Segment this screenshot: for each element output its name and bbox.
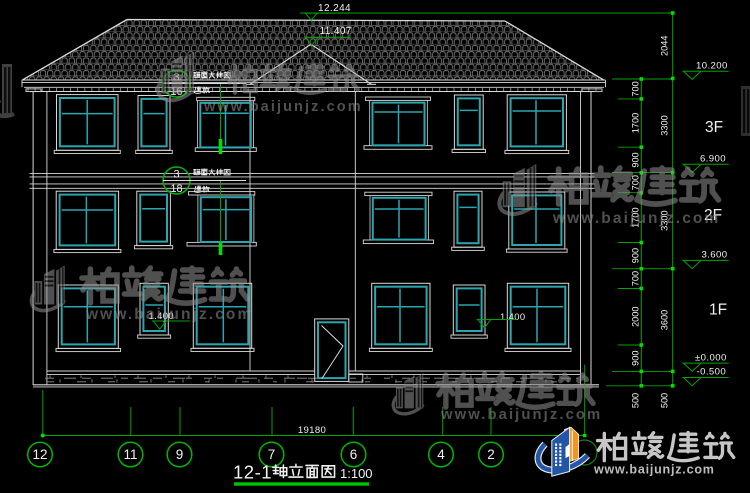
svg-text:700: 700 <box>631 271 641 286</box>
svg-text:4: 4 <box>437 447 445 462</box>
svg-text:2: 2 <box>487 447 495 462</box>
svg-text:www.baijunjz.com: www.baijunjz.com <box>203 99 363 115</box>
svg-text:3300: 3300 <box>660 115 670 135</box>
svg-text:1.400: 1.400 <box>500 311 525 322</box>
svg-text:±0.000: ±0.000 <box>695 352 727 363</box>
svg-text:11: 11 <box>123 447 137 462</box>
svg-text:www.baijunjz.com: www.baijunjz.com <box>440 407 602 423</box>
svg-text:1:100: 1:100 <box>340 466 373 481</box>
svg-text:900: 900 <box>631 248 641 263</box>
svg-text:500: 500 <box>631 393 641 408</box>
svg-text:3600: 3600 <box>660 310 670 330</box>
svg-text:12: 12 <box>32 447 47 462</box>
svg-text:3: 3 <box>173 169 179 181</box>
svg-text:-0.500: -0.500 <box>697 367 727 378</box>
svg-text:12-1: 12-1 <box>233 462 272 483</box>
svg-text:6.900: 6.900 <box>700 154 726 165</box>
svg-text:3F: 3F <box>705 119 723 136</box>
svg-text:9: 9 <box>176 447 184 462</box>
svg-text:2044: 2044 <box>660 36 670 56</box>
svg-text:1F: 1F <box>709 302 727 319</box>
svg-text:2000: 2000 <box>631 306 641 326</box>
svg-text:900: 900 <box>631 152 641 167</box>
svg-text:6: 6 <box>350 447 358 462</box>
svg-text:18: 18 <box>170 183 182 195</box>
svg-text:7: 7 <box>268 447 276 462</box>
svg-text:1700: 1700 <box>631 113 641 133</box>
svg-text:900: 900 <box>631 351 641 366</box>
svg-text:11.407: 11.407 <box>320 26 352 37</box>
svg-text:700: 700 <box>631 81 641 96</box>
svg-text:10.200: 10.200 <box>696 60 728 71</box>
svg-text:www.baijunjz.com: www.baijunjz.com <box>552 210 720 227</box>
svg-text:3.600: 3.600 <box>702 250 728 261</box>
svg-text:19180: 19180 <box>298 425 326 436</box>
svg-text:12.244: 12.244 <box>318 3 351 14</box>
svg-text:www.baijunjz.com: www.baijunjz.com <box>593 463 715 477</box>
svg-text:www.baijunjz.com: www.baijunjz.com <box>85 306 253 323</box>
svg-text:500: 500 <box>660 393 670 408</box>
